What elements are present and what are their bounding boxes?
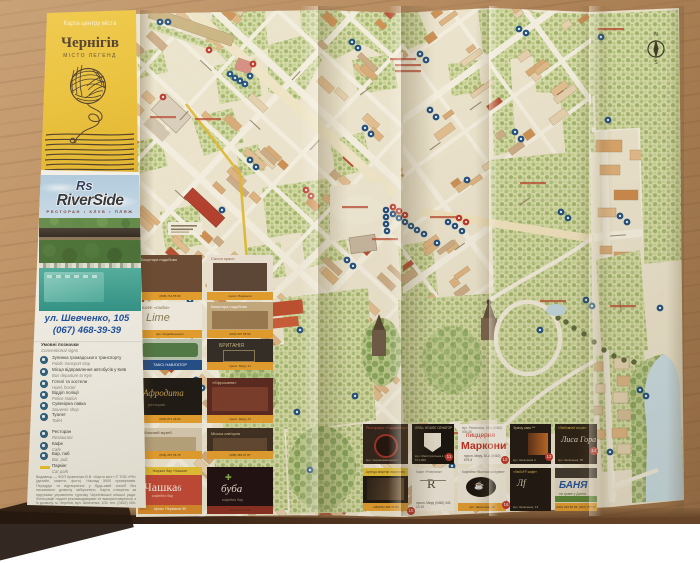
svg-text:N: N [654,32,658,38]
